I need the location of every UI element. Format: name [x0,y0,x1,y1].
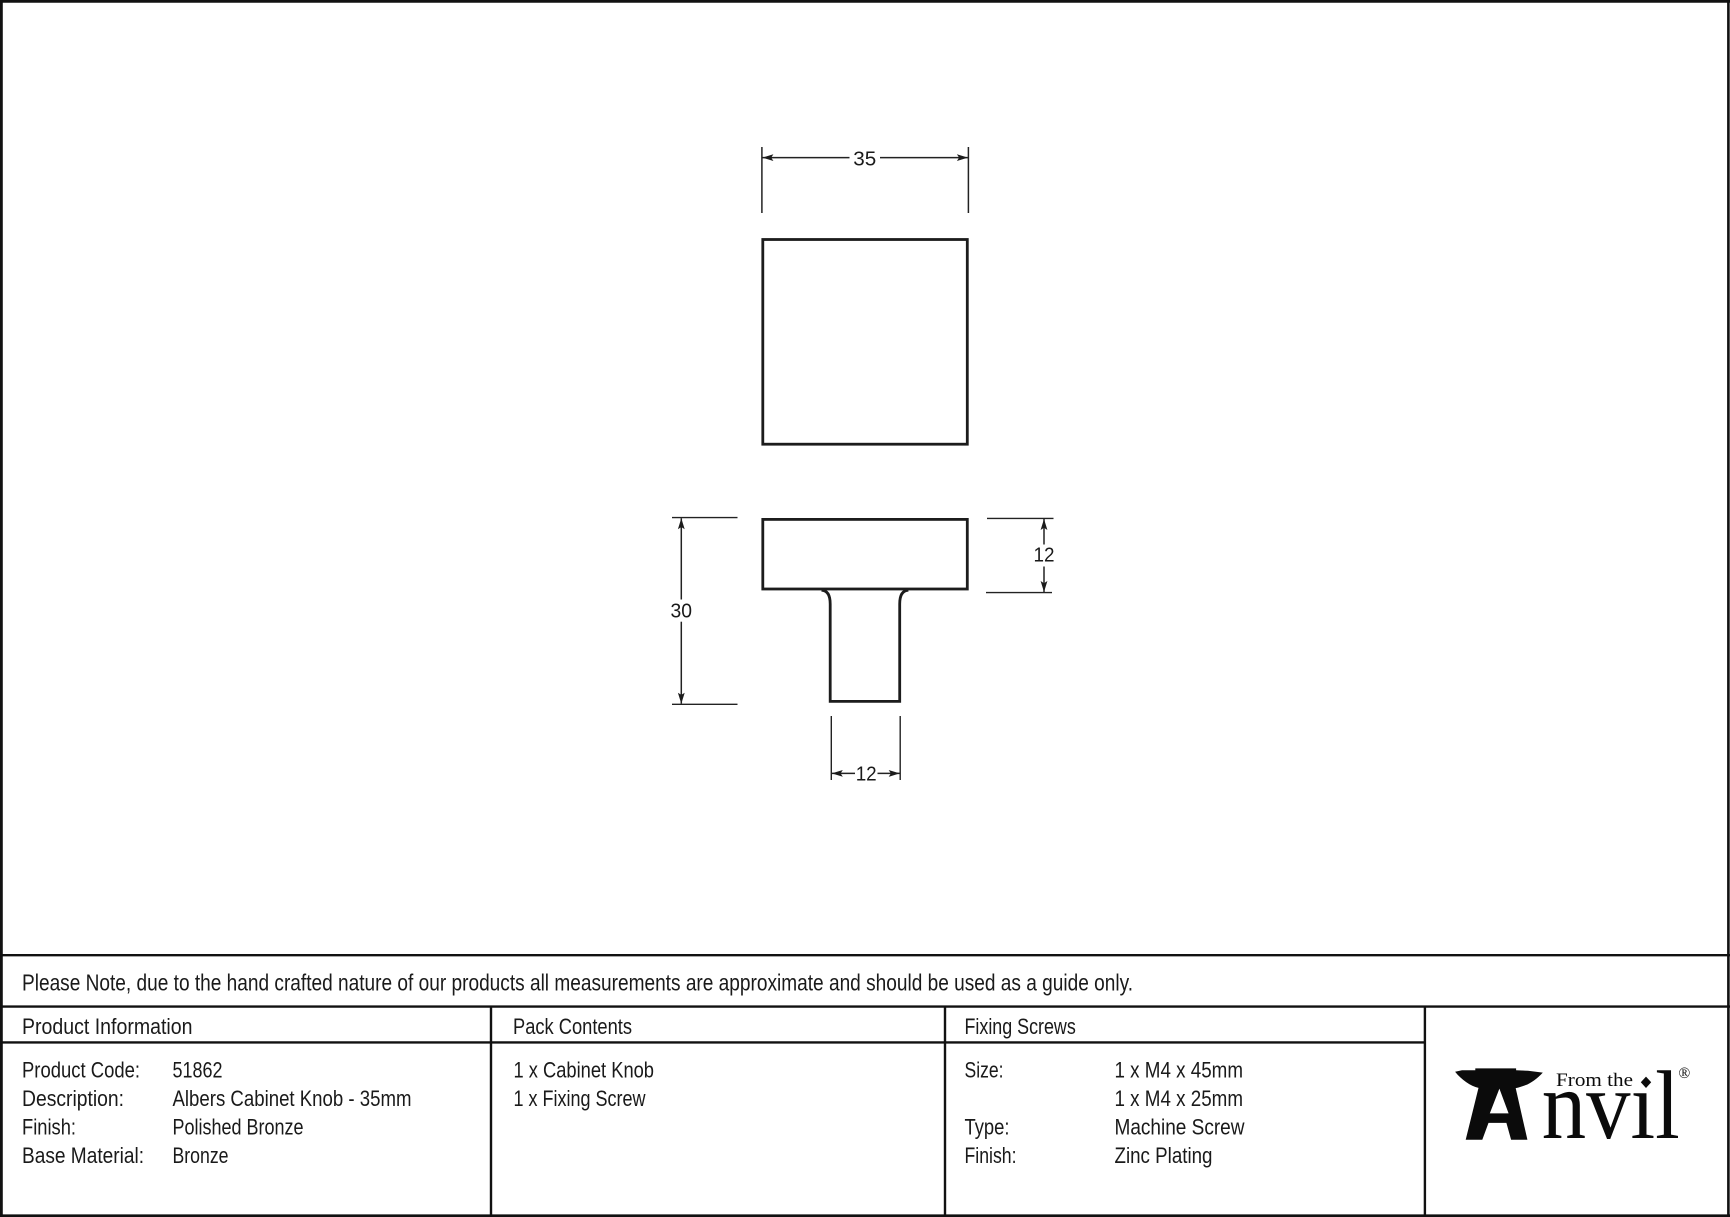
svg-text:1 x Cabinet Knob: 1 x Cabinet Knob [514,1057,655,1082]
svg-text:Size:: Size: [965,1057,1004,1082]
svg-text:Finish:: Finish: [22,1114,76,1139]
svg-text:Please Note, due to the hand c: Please Note, due to the hand crafted nat… [22,970,1133,996]
svg-text:35: 35 [853,148,876,170]
svg-text:51862: 51862 [173,1057,223,1082]
svg-text:30: 30 [671,601,693,623]
svg-text:12: 12 [856,764,877,786]
svg-text:Description:: Description: [22,1086,124,1111]
svg-text:Finish:: Finish: [965,1143,1017,1168]
svg-text:1 x Fixing Screw: 1 x Fixing Screw [514,1086,647,1111]
svg-text:Base Material:: Base Material: [22,1143,144,1168]
svg-text:Product Information: Product Information [22,1014,193,1039]
svg-text:Polished Bronze: Polished Bronze [173,1114,304,1139]
svg-text:Product Code:: Product Code: [22,1057,140,1082]
svg-text:Zinc Plating: Zinc Plating [1115,1143,1213,1168]
svg-text:12: 12 [1034,545,1055,567]
svg-text:Fixing Screws: Fixing Screws [965,1014,1076,1039]
svg-text:Albers Cabinet Knob - 35mm: Albers Cabinet Knob - 35mm [173,1086,412,1111]
svg-text:Bronze: Bronze [173,1143,229,1168]
svg-text:®: ® [1679,1065,1691,1082]
svg-text:Pack Contents: Pack Contents [513,1014,632,1039]
svg-text:nvıl: nvıl [1542,1052,1680,1159]
svg-text:Machine Screw: Machine Screw [1115,1114,1246,1139]
svg-text:Type:: Type: [965,1114,1010,1139]
svg-text:1 x M4 x 25mm: 1 x M4 x 25mm [1115,1086,1244,1111]
svg-text:1 x M4 x 45mm: 1 x M4 x 45mm [1115,1057,1244,1082]
